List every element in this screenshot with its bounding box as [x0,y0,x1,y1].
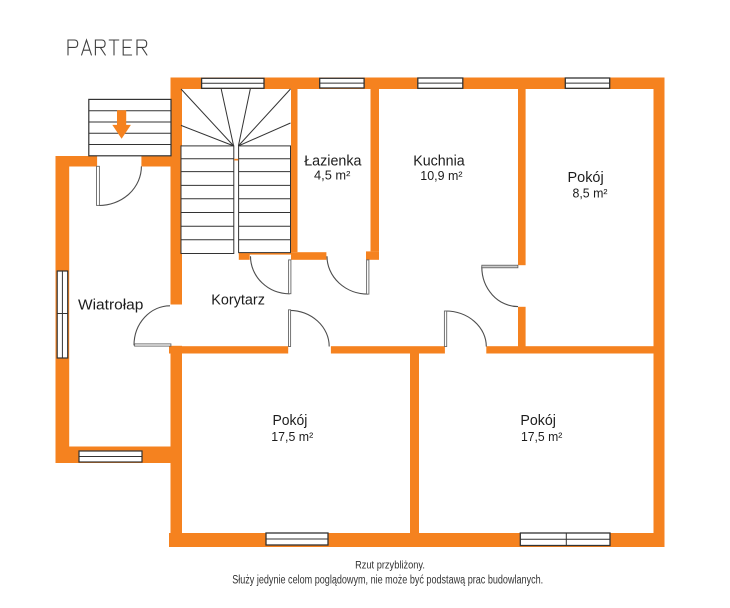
svg-text:Pokój: Pokój [568,169,604,186]
svg-text:Korytarz: Korytarz [211,292,265,309]
svg-text:Rzut przybliżony.: Rzut przybliżony. [355,559,425,571]
svg-text:4,5 m²: 4,5 m² [314,168,351,183]
svg-text:10,9 m²: 10,9 m² [420,168,463,183]
svg-text:17,5 m²: 17,5 m² [271,429,314,444]
svg-text:Pokój: Pokój [273,412,308,429]
svg-text:Wiatrołap: Wiatrołap [78,297,143,314]
svg-text:Służy jedynie celom poglądowym: Służy jedynie celom poglądowym, nie może… [232,574,543,586]
svg-text:8,5 m²: 8,5 m² [573,185,609,200]
svg-text:Pokój: Pokój [520,412,556,429]
svg-text:17,5 m²: 17,5 m² [521,429,563,444]
